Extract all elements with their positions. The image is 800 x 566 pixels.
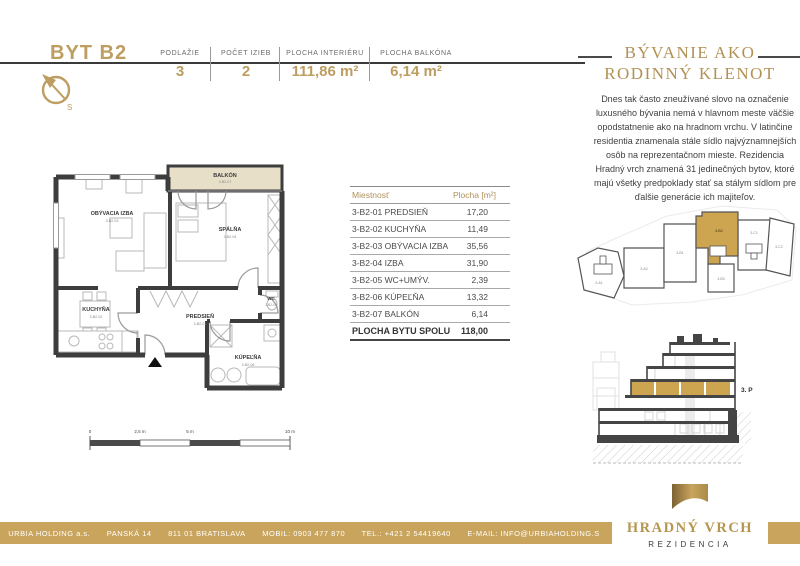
spec-label: PLOCHA BALKÓNA <box>371 46 461 62</box>
footer-street: PANSKÁ 14 <box>107 529 152 538</box>
footer-mobile: MOBIL: 0903 477 870 <box>262 529 345 538</box>
table-row: 3-B2-03 OBÝVACIA IZBA35,56 <box>350 238 510 255</box>
footer-city: 811 01 BRATISLAVA <box>168 529 246 538</box>
spec-podlazie: PODLAŽIE 3 <box>150 46 210 84</box>
table-total-row: PLOCHA BYTU SPOLU 118,00 <box>350 323 510 341</box>
svg-text:S: S <box>67 103 72 112</box>
room-area-table: Miestnosť Plocha [m²] 3-B2-01 PREDSIEŇ17… <box>350 186 510 341</box>
svg-text:0: 0 <box>89 429 92 434</box>
highlighted-unit-label: 3-B2 <box>715 229 723 233</box>
total-value: 118,00 <box>451 323 510 341</box>
background-building <box>593 352 619 410</box>
spec-separator <box>279 47 280 81</box>
brand-logo: HRADNÝ VRCH REZIDENCIA <box>612 478 768 566</box>
svg-text:10 m: 10 m <box>285 429 295 434</box>
table-row: 3-B2-06 KÚPEĽŇA13,32 <box>350 289 510 306</box>
svg-text:3-A1: 3-A1 <box>595 281 603 285</box>
site-units <box>578 212 794 298</box>
room-label-kitchen: KUCHYŇA <box>82 305 110 313</box>
floor-level-label: 3. P <box>741 387 753 394</box>
spec-label: POČET IZIEB <box>213 46 279 62</box>
room-label-hall: PREDSIEŇ <box>186 312 214 320</box>
svg-text:5 m: 5 m <box>186 429 194 434</box>
room-label-wc: WC <box>267 296 275 301</box>
total-label: PLOCHA BYTU SPOLU <box>350 323 451 341</box>
ground-hatch <box>593 445 743 463</box>
footer-phone: TEL.: +421 2 54419640 <box>362 529 451 538</box>
intro-paragraph: Dnes tak často zneužívané slovo na označ… <box>593 92 797 204</box>
spec-separator <box>210 47 211 81</box>
floor-plan: OBÝVACIA IZBA 3-B2-03 SPÁLŇA 3-B2-04 KUC… <box>50 163 300 463</box>
site-plan: 3-A1 3-A2 3-B1 3-B2 3-B3 3-C1 3-C2 <box>572 190 800 312</box>
table-header-row: Miestnosť Plocha [m²] <box>350 187 510 204</box>
building-section: 3. P <box>585 332 790 482</box>
section-heading: BÝVANIE AKO RODINNÝ KLENOT <box>580 42 800 84</box>
spec-separator <box>369 47 370 81</box>
logo-subtitle: REZIDENCIA <box>612 540 768 549</box>
svg-text:3-B2-01: 3-B2-01 <box>194 322 207 326</box>
spec-plocha-balkona: PLOCHA BALKÓNA 6,14 m² <box>371 46 461 84</box>
room-label-balcony: BALKÓN <box>213 171 237 179</box>
table-row: 3-B2-02 KUCHYŇA11,49 <box>350 221 510 238</box>
spec-pocet-izieb: POČET IZIEB 2 <box>213 46 279 84</box>
compass-icon: S <box>30 66 82 118</box>
svg-text:3-B2-06: 3-B2-06 <box>242 363 255 367</box>
spec-value: 111,86 m² <box>281 62 369 82</box>
spec-value: 6,14 m² <box>371 62 461 82</box>
svg-text:3-C2: 3-C2 <box>775 245 783 249</box>
svg-text:3-B2-04: 3-B2-04 <box>224 235 237 239</box>
side-hatch <box>737 412 751 444</box>
svg-text:3-B2-05: 3-B2-05 <box>265 303 277 307</box>
heading-line-2: RODINNÝ KLENOT <box>580 63 800 84</box>
col-header-area: Plocha [m²] <box>451 187 510 204</box>
footer-company: URBIA HOLDING a.s. <box>8 529 90 538</box>
svg-text:3-B2-02: 3-B2-02 <box>90 315 103 319</box>
svg-text:3-B3: 3-B3 <box>717 277 725 281</box>
heading-line-1: BÝVANIE AKO <box>580 42 800 63</box>
entrance-arrow <box>148 357 162 367</box>
svg-text:3-A2: 3-A2 <box>640 267 648 271</box>
svg-text:3-B2-03: 3-B2-03 <box>106 219 119 223</box>
room-label-living: OBÝVACIA IZBA <box>91 210 134 217</box>
room-label-bathroom: KÚPEĽŇA <box>235 353 262 361</box>
footer-contact-items: URBIA HOLDING a.s. PANSKÁ 14 811 01 BRAT… <box>0 522 608 544</box>
spec-value: 3 <box>150 62 210 82</box>
col-header-room: Miestnosť <box>350 187 451 204</box>
svg-text:3-C1: 3-C1 <box>750 231 758 235</box>
spec-plocha-interieru: PLOCHA INTERIÉRU 111,86 m² <box>281 46 369 84</box>
svg-text:3-B2-07: 3-B2-07 <box>219 180 232 184</box>
flag-icon <box>668 482 712 512</box>
footer-email: E-MAIL: INFO@URBIAHOLDING.S <box>467 529 599 538</box>
table-row: 3-B2-01 PREDSIEŇ17,20 <box>350 204 510 221</box>
table-row: 3-B2-07 BALKÓN6,14 <box>350 306 510 323</box>
logo-name: HRADNÝ VRCH <box>612 520 768 537</box>
table-row: 3-B2-04 IZBA31,90 <box>350 255 510 272</box>
brochure-page: BYT B2 PODLAŽIE 3 POČET IZIEB 2 PLOCHA I… <box>0 0 800 566</box>
scale-bar: 0 2,5 m 5 m 10 m <box>89 429 296 450</box>
table-row: 3-B2-05 WC+UMÝV.2,39 <box>350 272 510 289</box>
svg-text:3-B1: 3-B1 <box>676 251 684 255</box>
heading-rule-left <box>578 56 612 58</box>
spec-label: PLOCHA INTERIÉRU <box>281 46 369 62</box>
spec-value: 2 <box>213 62 279 82</box>
svg-text:2,5 m: 2,5 m <box>134 429 146 434</box>
spec-label: PODLAŽIE <box>150 46 210 62</box>
room-label-bedroom: SPÁLŇA <box>219 225 242 233</box>
heading-rule-right <box>758 56 800 58</box>
